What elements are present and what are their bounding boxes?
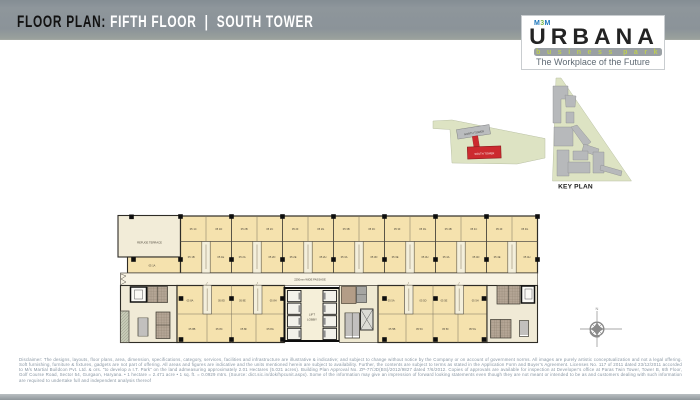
svg-text:05 5H: 05 5H <box>472 299 479 303</box>
svg-text:05 4C: 05 4C <box>470 227 477 231</box>
svg-text:05 3G: 05 3G <box>419 227 426 231</box>
svg-text:05 4B: 05 4B <box>445 227 452 231</box>
svg-text:05 8G: 05 8G <box>267 327 274 331</box>
svg-text:05 1A: 05 1A <box>149 264 156 268</box>
svg-text:N: N <box>596 306 599 311</box>
svg-text:05 3H: 05 3H <box>421 255 428 259</box>
svg-text:KEY PLAN: KEY PLAN <box>558 184 593 191</box>
svg-text:05 3D: 05 3D <box>370 255 377 259</box>
svg-text:05 4H: 05 4H <box>523 255 530 259</box>
svg-text:05 3A: 05 3A <box>341 255 348 259</box>
svg-text:05 5F: 05 5F <box>442 327 449 331</box>
svg-text:05 8H: 05 8H <box>270 299 277 303</box>
svg-text:05 2A: 05 2A <box>239 255 246 259</box>
svg-text:05 4G: 05 4G <box>521 227 528 231</box>
svg-text:05 5G: 05 5G <box>469 327 476 331</box>
svg-text:05 2G: 05 2G <box>317 227 324 231</box>
svg-text:05 4E: 05 4E <box>494 255 501 259</box>
svg-text:05 8E: 05 8E <box>239 299 246 303</box>
svg-text:LOBBY: LOBBY <box>307 318 317 322</box>
svg-text:05 2C: 05 2C <box>266 227 273 231</box>
svg-text:05 8F: 05 8F <box>240 327 247 331</box>
svg-text:05 8B: 05 8B <box>189 327 196 331</box>
svg-text:05 5A: 05 5A <box>388 299 395 303</box>
svg-text:05 3F: 05 3F <box>394 227 401 231</box>
svg-text:05 1C: 05 1C <box>190 227 197 231</box>
svg-text:05 5B: 05 5B <box>389 327 396 331</box>
svg-text:05 4A: 05 4A <box>443 255 450 259</box>
svg-text:05 2E: 05 2E <box>290 255 297 259</box>
svg-text:05 5E: 05 5E <box>441 299 448 303</box>
svg-text:05 2H: 05 2H <box>319 255 326 259</box>
svg-text:05 1D: 05 1D <box>215 227 222 231</box>
svg-text:05 5C: 05 5C <box>416 327 423 331</box>
svg-text:05 5D: 05 5D <box>420 299 427 303</box>
svg-text:05 4F: 05 4F <box>496 227 503 231</box>
svg-text:05 2F: 05 2F <box>292 227 299 231</box>
svg-text:SOUTH TOWER: SOUTH TOWER <box>474 151 494 156</box>
svg-text:05 1B: 05 1B <box>188 255 195 259</box>
svg-text:05 1E: 05 1E <box>217 255 224 259</box>
svg-text:05 4D: 05 4D <box>472 255 479 259</box>
svg-text:05 8A: 05 8A <box>187 299 194 303</box>
svg-text:05 2D: 05 2D <box>268 255 275 259</box>
svg-text:2250mm WIDE PASSAGE: 2250mm WIDE PASSAGE <box>294 278 326 282</box>
svg-text:05 2B: 05 2B <box>241 227 248 231</box>
svg-text:05 3B: 05 3B <box>343 227 350 231</box>
svg-text:05 8D: 05 8D <box>218 299 225 303</box>
svg-text:LIFT: LIFT <box>309 313 315 317</box>
svg-text:05 3C: 05 3C <box>368 227 375 231</box>
svg-text:05 8C: 05 8C <box>216 327 223 331</box>
svg-text:05 3E: 05 3E <box>392 255 399 259</box>
svg-text:REFUGE TERRACE: REFUGE TERRACE <box>137 241 162 245</box>
